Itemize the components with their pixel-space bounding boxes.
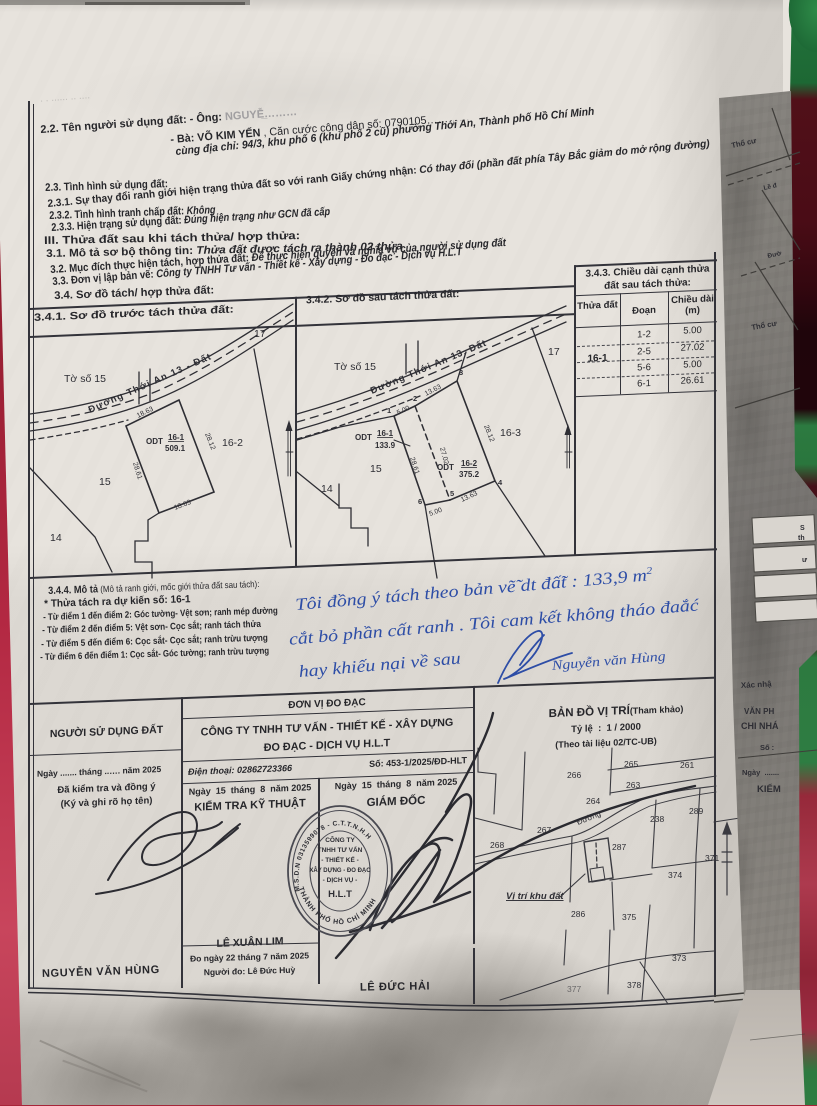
svg-text:XÂY DỰNG - ĐO ĐẠC: XÂY DỰNG - ĐO ĐẠC [309,867,371,874]
svg-text:378: 378 [627,980,641,990]
svg-text:- DỊCH VỤ -: - DỊCH VỤ - [323,877,358,884]
svg-text:CÔNG TY: CÔNG TY [325,835,355,844]
svg-text:377: 377 [567,984,581,994]
svg-text:- THIẾT KẾ -: - THIẾT KẾ - [321,854,359,864]
svg-text:TNHH TƯ VẤN: TNHH TƯ VẤN [318,844,363,854]
svg-text:H.L.T: H.L.T [328,889,352,900]
